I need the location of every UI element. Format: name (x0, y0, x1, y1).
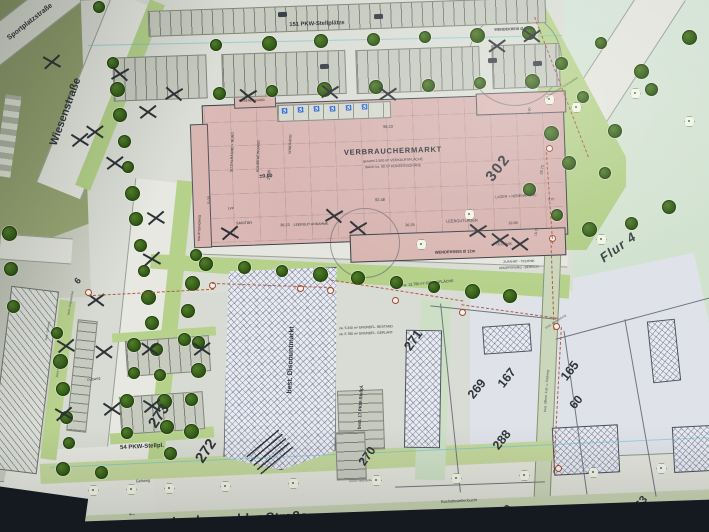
tree-icon (4, 262, 18, 276)
tree-icon (127, 338, 141, 352)
car-icon (488, 58, 497, 63)
d9623-label: 96.23 (383, 125, 393, 129)
felled-tree-icon (147, 209, 164, 226)
d500-label: 5.00 (208, 196, 212, 204)
tree-icon (95, 466, 108, 479)
tree-icon (210, 39, 222, 51)
tree-icon (238, 261, 251, 274)
existing-building-southeast (672, 425, 709, 473)
felled-tree-icon (96, 344, 112, 360)
boundary-point-icon (555, 465, 562, 472)
tree-icon (128, 367, 140, 379)
lvp-label: LVP (228, 207, 234, 211)
d3625-label: 36.25 (405, 224, 415, 228)
tree-icon (634, 64, 649, 79)
tree-icon (213, 87, 226, 100)
tree-icon (525, 74, 540, 89)
tree-icon (184, 424, 199, 439)
tree-icon (422, 79, 435, 92)
felled-tree-icon (57, 337, 74, 354)
felled-tree-icon (469, 222, 486, 239)
existing-building-parcel-288 (552, 424, 620, 475)
tree-icon (129, 212, 143, 226)
tree-icon (262, 36, 277, 51)
felled-tree-icon (111, 65, 129, 83)
tree-icon (551, 209, 563, 221)
tree-icon (682, 30, 697, 45)
tree-icon (266, 85, 278, 97)
anlieferung-label: ANLIEFERUNG - BEREICH (499, 265, 539, 270)
tree-icon (121, 427, 133, 439)
car-icon (320, 64, 329, 69)
tree-icon (474, 77, 486, 89)
existing-building-parcel-167 (482, 323, 532, 354)
tree-icon (145, 316, 159, 330)
road-arrow-icon: ← (127, 509, 137, 519)
tree-icon (199, 257, 213, 271)
technik-label: TECHNIK (496, 243, 512, 247)
felled-tree-icon (489, 38, 505, 54)
wheelchair-icon: ♿ (298, 108, 304, 113)
d3623-label: 36.23 (280, 224, 290, 228)
felled-tree-icon (87, 124, 103, 140)
wheelchair-icon: ♿ (282, 109, 288, 114)
felled-tree-icon (71, 131, 88, 148)
tree-icon (582, 222, 597, 237)
tree-icon (662, 200, 676, 214)
tree-icon (470, 28, 485, 43)
wheelchair-icon: ♿ (346, 106, 352, 111)
tree-icon (314, 34, 328, 48)
felled-tree-icon (43, 53, 61, 71)
tree-icon (419, 31, 431, 43)
tree-icon (51, 327, 63, 339)
tree-icon (390, 276, 403, 289)
tree-icon (118, 135, 131, 148)
tree-icon (7, 300, 20, 313)
boundary-point-icon (392, 297, 399, 304)
tree-icon (313, 267, 328, 282)
tree-icon (544, 126, 559, 141)
tree-icon (191, 363, 206, 378)
felled-tree-icon (140, 104, 157, 121)
tree-icon (181, 304, 195, 318)
tree-icon (120, 394, 134, 408)
tree-icon (465, 284, 480, 299)
wheelchair-icon: ♿ (314, 107, 320, 112)
felled-tree-icon (104, 401, 121, 418)
felled-tree-icon (194, 341, 211, 358)
felled-tree-icon (143, 250, 161, 268)
tree-icon (562, 156, 576, 170)
tree-icon (185, 393, 198, 406)
tree-icon (2, 226, 17, 241)
d9248-label: 92.48 (375, 198, 385, 202)
felled-tree-icon (380, 86, 397, 103)
felled-tree-icon (142, 341, 158, 357)
felled-tree-icon (221, 224, 239, 242)
tree-icon (276, 265, 288, 277)
wheelchair-icon: ♿ (362, 105, 368, 110)
tree-icon (595, 37, 607, 49)
wheelchair-icon: ♿ (330, 107, 336, 112)
tree-icon (56, 382, 70, 396)
tree-icon (56, 462, 70, 476)
windfang-label: WINDFANG (289, 134, 293, 153)
tree-icon (154, 369, 166, 381)
gehweg-label: Gehweg (136, 479, 151, 484)
felled-tree-icon (165, 85, 182, 102)
boundary-point-icon (546, 145, 553, 152)
tree-icon (113, 108, 127, 122)
felled-tree-icon (349, 219, 366, 236)
tree-icon (125, 186, 140, 201)
felled-tree-icon (55, 405, 73, 423)
car-icon (533, 61, 542, 66)
car-icon (278, 12, 287, 17)
tree-icon (93, 1, 105, 13)
tree-icon (608, 124, 622, 138)
tree-icon (625, 217, 638, 230)
boundary-point-icon (459, 309, 466, 316)
tree-icon (645, 83, 658, 96)
tree-icon (185, 276, 200, 291)
tree-icon (555, 57, 568, 70)
tree-icon (178, 333, 191, 346)
tree-icon (164, 447, 177, 460)
sanitaer-label: SANITÄR (236, 222, 252, 226)
tree-icon (134, 239, 147, 252)
felled-tree-icon (512, 236, 529, 253)
tree-icon (63, 437, 75, 449)
d1998-label: 19.98 (508, 222, 518, 226)
site-plan-photo: ♿♿♿♿♿♿← SportplatzstraßeWiesenstraßeLuck… (0, 0, 709, 532)
tree-icon (577, 91, 589, 103)
felled-tree-icon (322, 84, 339, 101)
tree-icon (110, 82, 125, 97)
car-icon (374, 14, 383, 19)
tree-icon (367, 33, 380, 46)
d375-label: 3.75 (548, 198, 555, 202)
tree-icon (599, 167, 611, 179)
tree-icon (503, 289, 517, 303)
felled-tree-icon (107, 155, 124, 172)
d2798-label: 27.98 (268, 170, 272, 180)
